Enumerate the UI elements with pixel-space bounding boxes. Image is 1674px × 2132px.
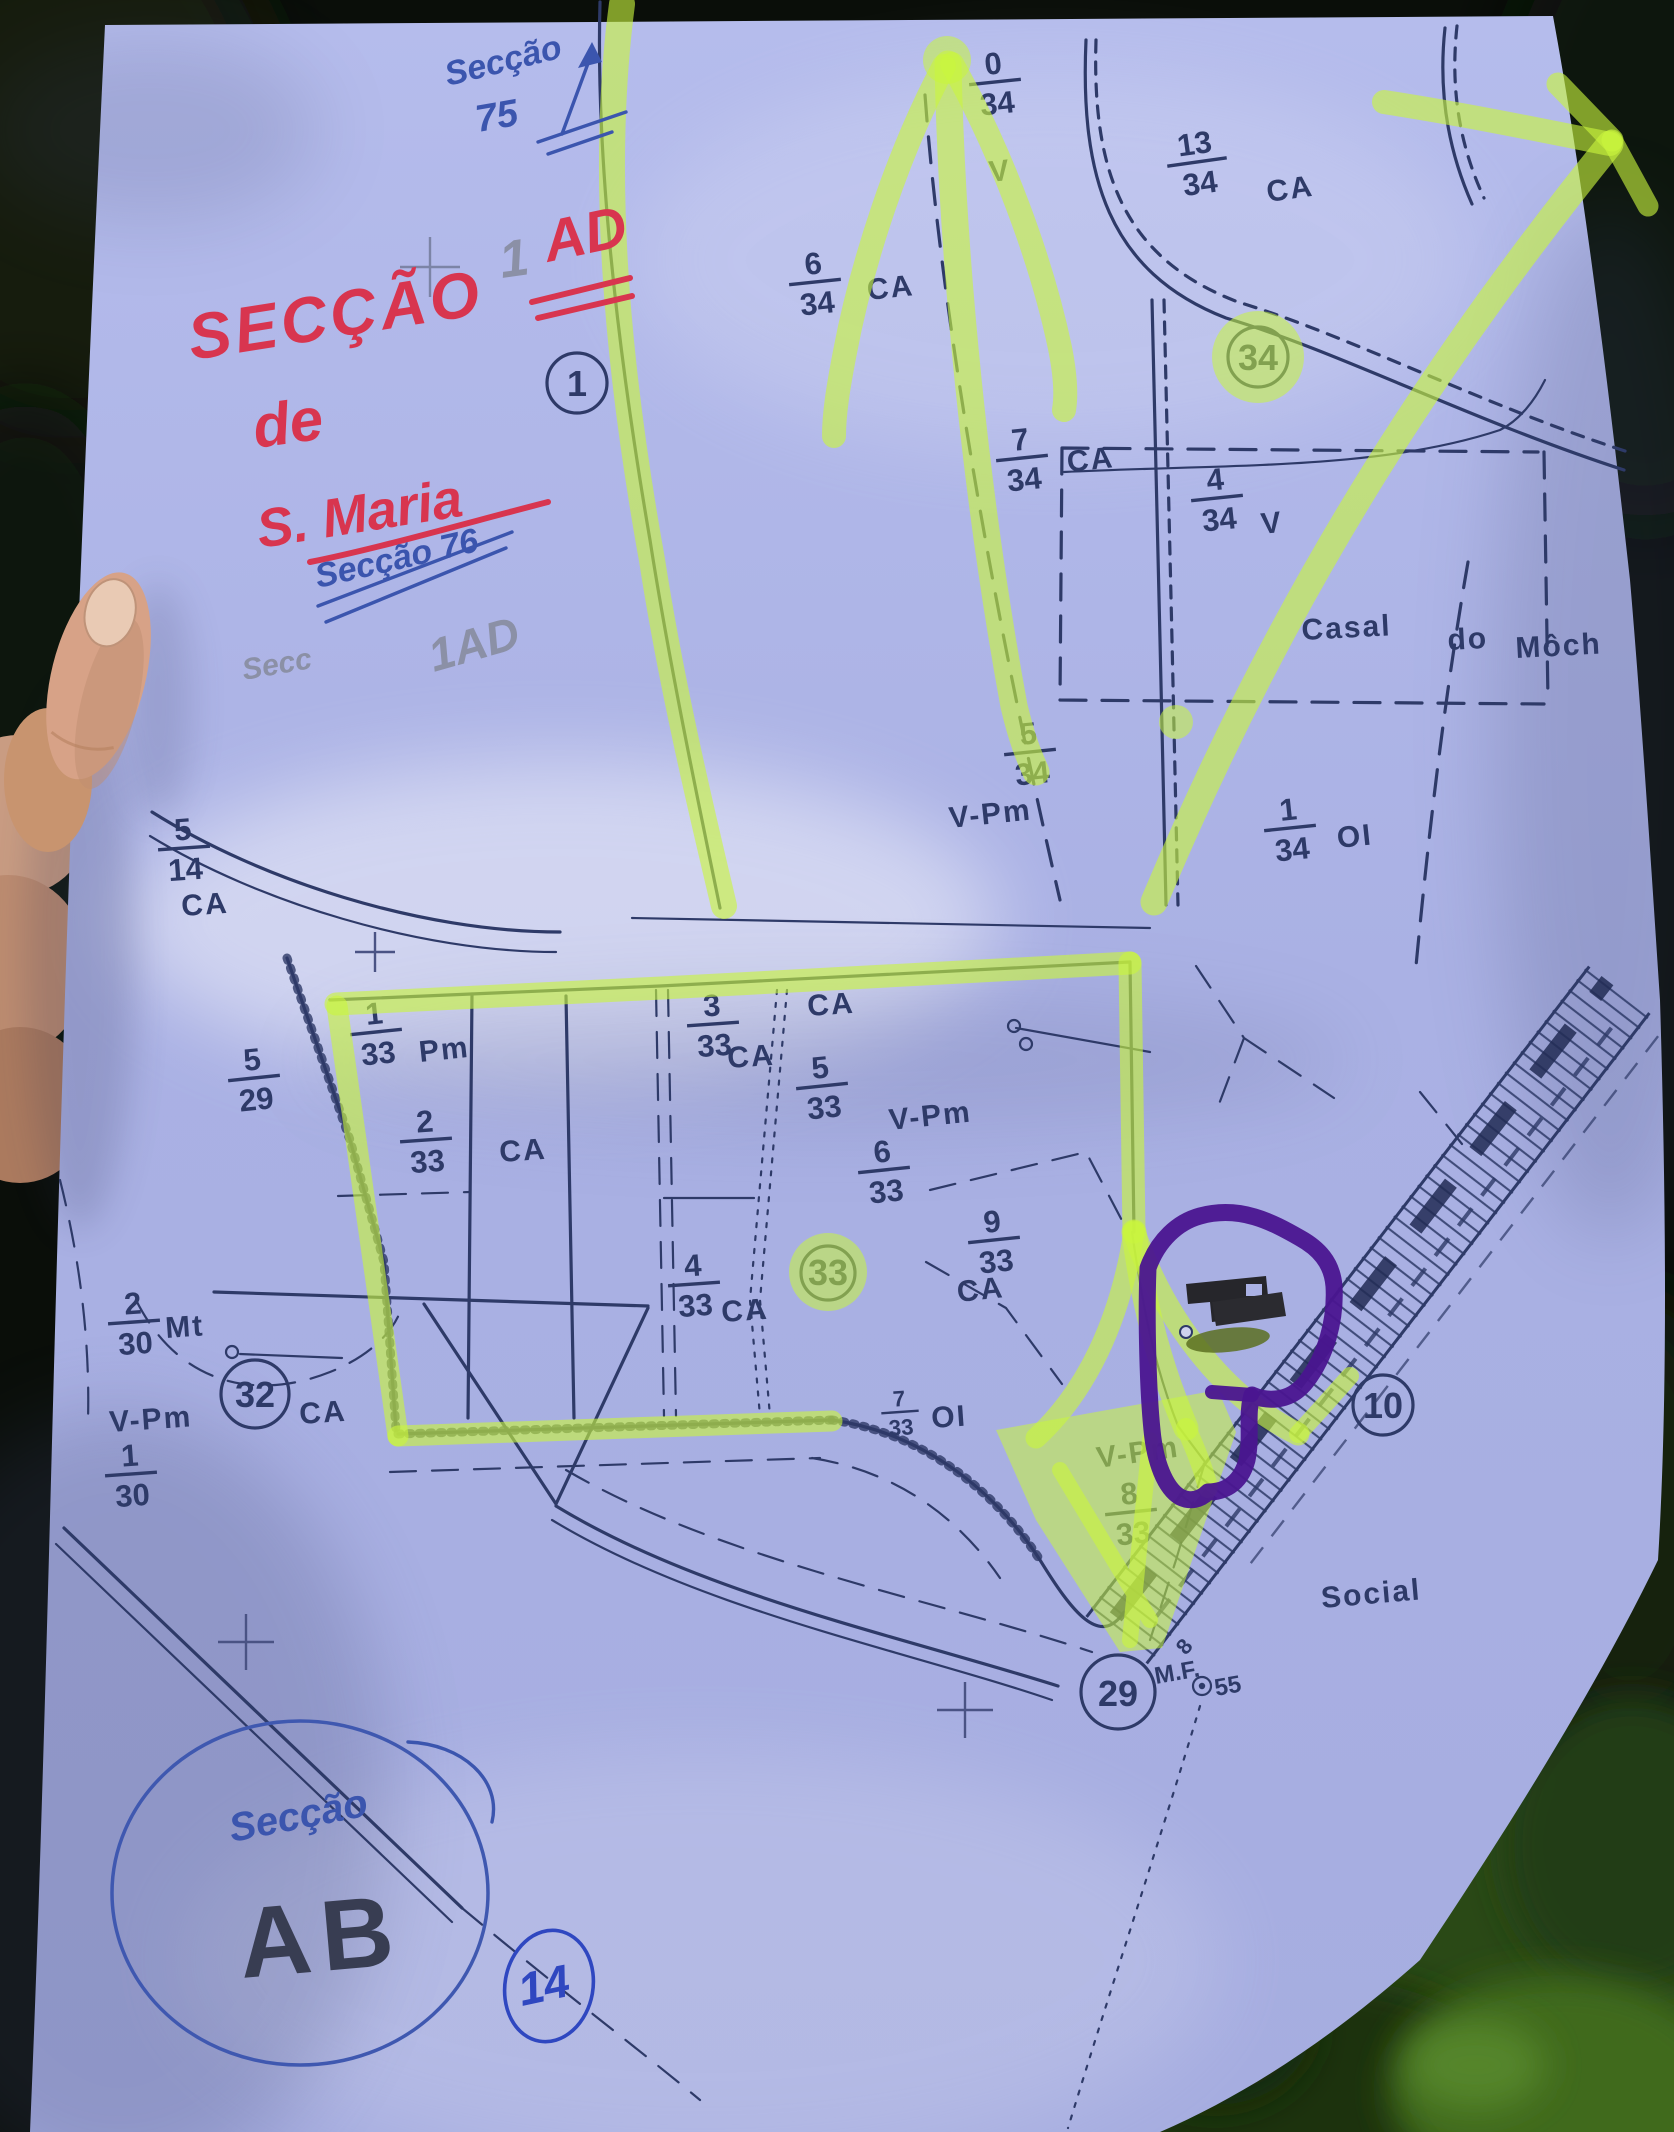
landuse-code-vpm: V-Pm [108, 1400, 193, 1439]
map-photo-canvas: 0 34 6 34 CA 13 34 CA V 7 34 CA 4 34 V 5… [0, 0, 1674, 2132]
landuse-code-pm: Pm [417, 1031, 471, 1069]
svg-text:33: 33 [888, 1414, 915, 1441]
place-label-moch: Môch [1515, 628, 1603, 665]
svg-text:1: 1 [1278, 791, 1299, 828]
svg-text:10: 10 [1363, 1385, 1403, 1426]
svg-text:33: 33 [867, 1172, 905, 1210]
landuse-code-ca: CA [180, 887, 230, 923]
highlight-dot [1159, 705, 1193, 739]
highlight-circle-34 [1212, 311, 1304, 403]
svg-text:13: 13 [1175, 124, 1214, 163]
svg-text:5: 5 [173, 811, 193, 847]
svg-text:9: 9 [982, 1203, 1003, 1240]
landuse-code-oi: OI [930, 1400, 968, 1435]
purple-marker-notch [1212, 1392, 1252, 1395]
section-ab-code: AB [234, 1874, 408, 2000]
svg-text:7: 7 [892, 1386, 906, 1412]
svg-text:4: 4 [683, 1247, 703, 1283]
svg-text:5: 5 [242, 1041, 263, 1078]
landuse-code-ca: CA [1264, 170, 1315, 209]
svg-text:6: 6 [803, 245, 824, 282]
svg-text:1: 1 [120, 1437, 140, 1473]
blue-note-top-number: 75 [472, 92, 522, 141]
landuse-code-ca: CA [298, 1395, 348, 1431]
landuse-code-mt: Mt [164, 1309, 205, 1345]
red-title-de: de [248, 385, 327, 461]
landuse-code-oi: OI [1335, 818, 1374, 855]
highlight-circle-33 [789, 1233, 867, 1311]
svg-text:34: 34 [1005, 460, 1044, 498]
svg-text:29: 29 [1098, 1673, 1138, 1714]
landuse-code-ca: CA [720, 1293, 770, 1329]
svg-text:2: 2 [415, 1103, 435, 1139]
svg-text:2: 2 [123, 1285, 143, 1321]
svg-text:34: 34 [1180, 163, 1220, 203]
svg-text:14: 14 [167, 851, 205, 888]
svg-text:33: 33 [359, 1034, 397, 1072]
svg-text:6: 6 [872, 1133, 893, 1170]
svg-text:30: 30 [114, 1477, 151, 1514]
svg-text:29: 29 [237, 1080, 275, 1118]
svg-text:34: 34 [1273, 830, 1312, 868]
svg-text:30: 30 [117, 1325, 154, 1362]
landuse-code-v: V [1259, 506, 1284, 541]
parcel-0-34-num: 0 [983, 45, 1004, 82]
svg-text:32: 32 [235, 1374, 275, 1415]
svg-text:5: 5 [810, 1049, 831, 1086]
mf-number: 55 [1212, 1671, 1243, 1702]
landuse-code-ca: CA [726, 1039, 776, 1075]
svg-text:7: 7 [1010, 421, 1031, 458]
landuse-code-ca: CA [1065, 441, 1116, 479]
svg-text:1: 1 [567, 363, 587, 404]
landuse-code-ca: CA [955, 1271, 1006, 1309]
landuse-code-ca: CA [806, 987, 856, 1023]
place-label-do: do [1447, 622, 1489, 657]
blue-circled-14-number: 14 [513, 1954, 574, 2016]
svg-text:33: 33 [805, 1088, 843, 1126]
place-label-casal: Casal [1301, 609, 1393, 647]
svg-text:34: 34 [1200, 500, 1239, 538]
svg-text:33: 33 [677, 1287, 714, 1324]
svg-text:34: 34 [798, 284, 837, 322]
svg-text:33: 33 [409, 1143, 446, 1180]
landuse-code-ca: CA [498, 1133, 548, 1169]
photo-of-cadastral-map: 0 34 6 34 CA 13 34 CA V 7 34 CA 4 34 V 5… [0, 0, 1674, 2132]
